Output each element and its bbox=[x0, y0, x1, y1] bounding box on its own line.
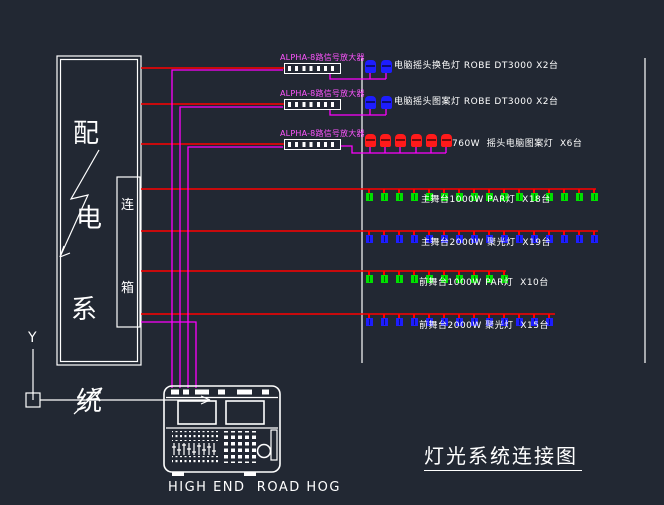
console-button-grid bbox=[172, 431, 218, 441]
distribution-box-char: 系 bbox=[71, 297, 97, 323]
fixture-row-label: 电脑摇头换色灯 ROBE DT3000 X2台 bbox=[394, 62, 559, 71]
ucs-y-label: Y bbox=[28, 331, 37, 345]
fixture-row-label: 电脑摇头图案灯 ROBE DT3000 X2台 bbox=[394, 98, 559, 107]
signal-amplifier-unit bbox=[284, 63, 341, 74]
signal-amplifier-label: ALPHA-8路信号放大器 bbox=[280, 130, 365, 138]
fixture-row-label: 前舞台2000W 聚光灯 X15台 bbox=[419, 322, 549, 331]
cad-canvas: 配 电 系 统 连 箱 ALPHA-8路信号放大器 ALPHA-8路信号放大器 … bbox=[0, 0, 664, 505]
distribution-box-char: 电 bbox=[76, 206, 102, 232]
console-screen-right bbox=[226, 401, 264, 424]
console-trackball bbox=[258, 445, 271, 458]
junction-box-char: 连 bbox=[121, 199, 134, 212]
console-screen-left bbox=[178, 401, 216, 424]
signal-amplifier-unit bbox=[284, 139, 341, 150]
signal-wires bbox=[141, 70, 446, 388]
distribution-box-char: 配 bbox=[73, 121, 99, 147]
fixture-row-label: 主舞台2000W 聚光灯 X19台 bbox=[421, 239, 551, 248]
diagram-linework bbox=[0, 0, 664, 505]
fixture-row-label: 主舞台1000W PAR灯 X18台 bbox=[421, 196, 551, 205]
fixture-row-label: 760W 摇头电脑图案灯 X6台 bbox=[452, 140, 582, 149]
ucs-icon bbox=[26, 349, 210, 414]
console-faders bbox=[172, 443, 216, 455]
console-label: HIGH END ROAD HOG bbox=[168, 481, 341, 494]
signal-amplifier-unit bbox=[284, 99, 341, 110]
distribution-box-char: 统 bbox=[76, 389, 102, 415]
signal-amplifier-label: ALPHA-8路信号放大器 bbox=[280, 90, 365, 98]
junction-box-char: 箱 bbox=[121, 282, 134, 295]
console-keypad bbox=[222, 431, 256, 463]
drawing-title: 灯光系统连接图 bbox=[424, 446, 582, 471]
signal-amplifier-label: ALPHA-8路信号放大器 bbox=[280, 54, 365, 62]
fixture-row-label: 前舞台1000W PAR灯 X10台 bbox=[419, 279, 549, 288]
